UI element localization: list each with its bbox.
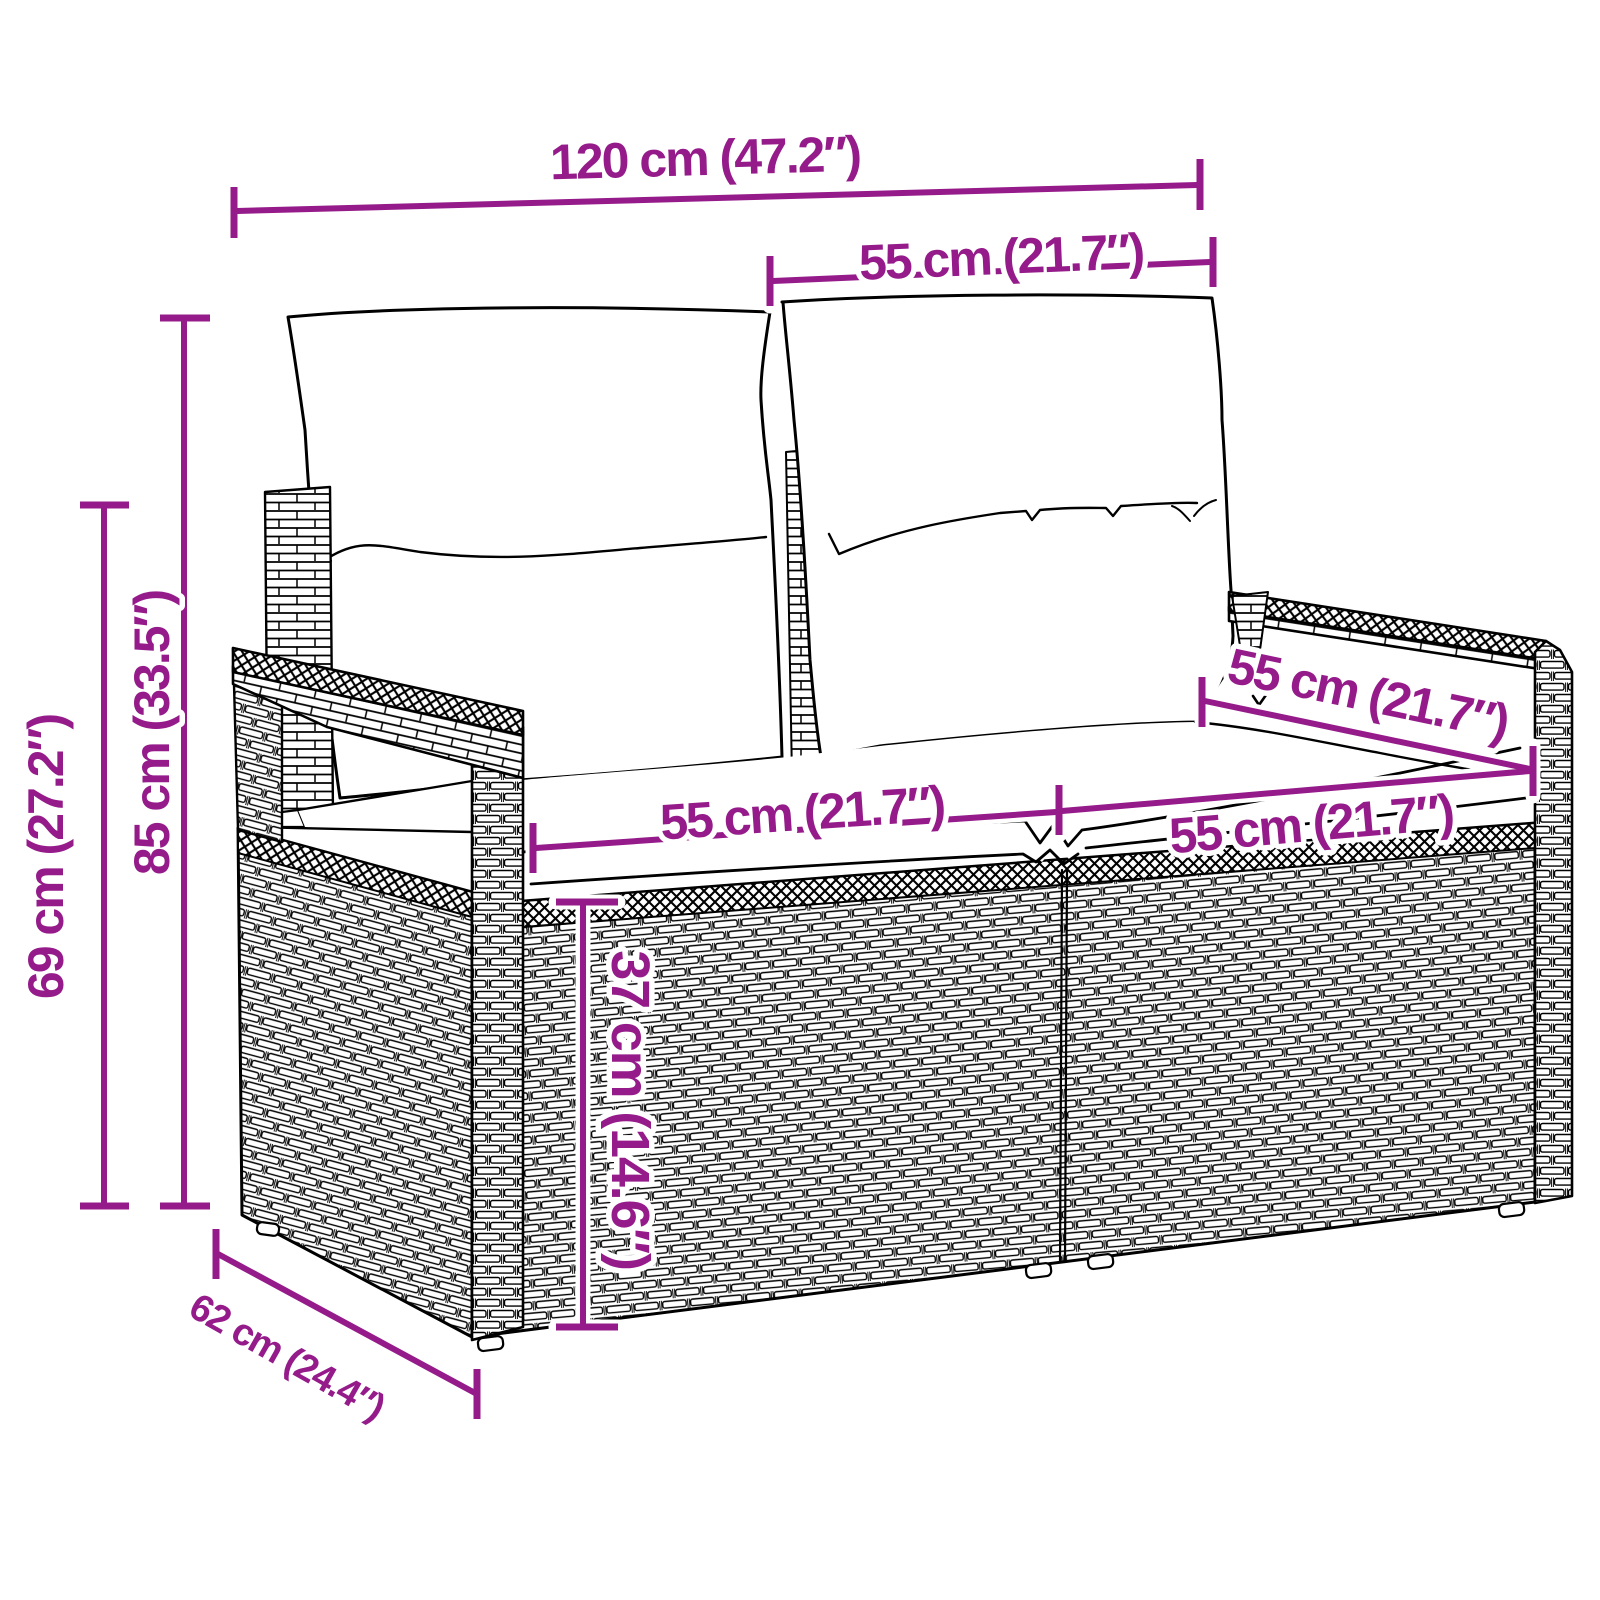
svg-text:37 cm (14.6″): 37 cm (14.6″) — [600, 950, 660, 1269]
svg-text:55 cm (21.7″): 55 cm (21.7″) — [858, 223, 1145, 291]
svg-text:85 cm (33.5″): 85 cm (33.5″) — [124, 591, 180, 876]
svg-text:69 cm (27.2″): 69 cm (27.2″) — [18, 715, 74, 1000]
svg-text:120 cm (47.2″): 120 cm (47.2″) — [549, 126, 861, 191]
